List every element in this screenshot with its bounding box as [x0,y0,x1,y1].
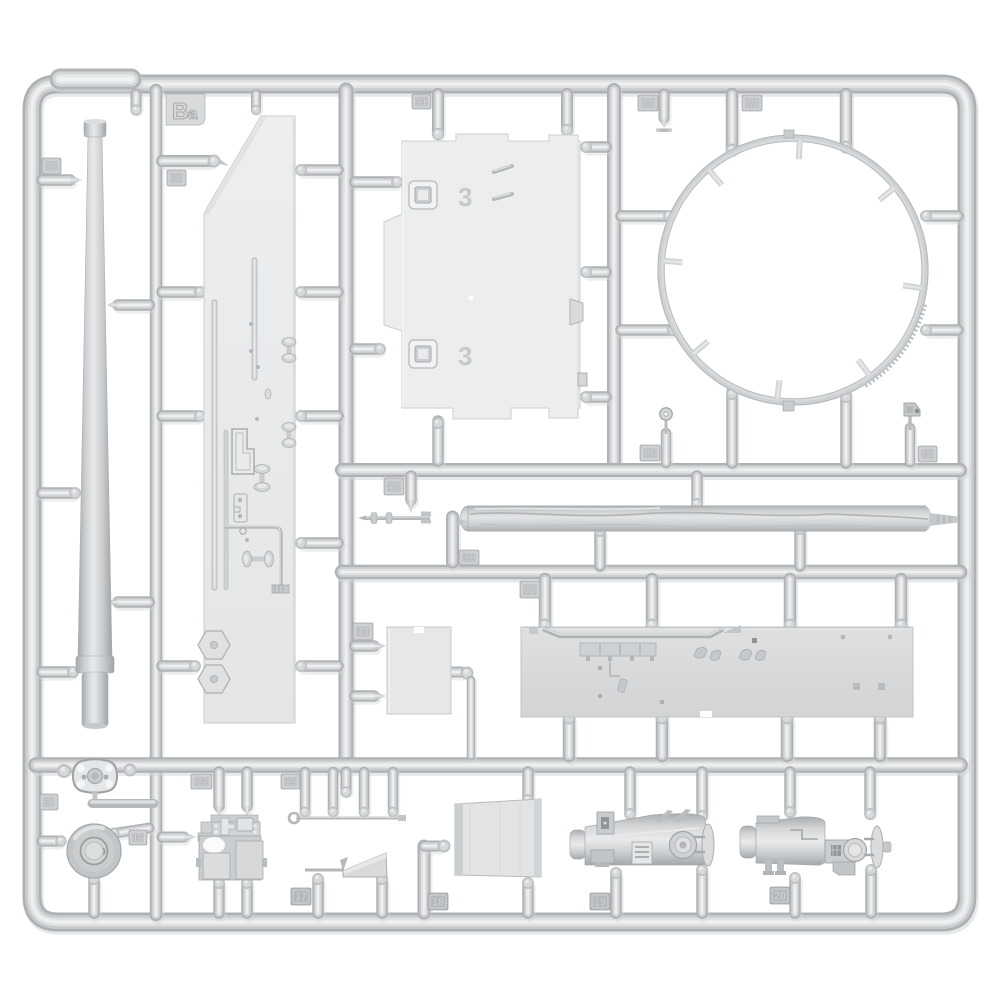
svg-text:1: 1 [48,161,54,173]
svg-text:14: 14 [196,777,208,788]
svg-text:4: 4 [173,173,180,185]
svg-text:15: 15 [285,777,297,788]
svg-text:8: 8 [645,98,651,110]
svg-text:3: 3 [924,449,930,461]
svg-text:20: 20 [774,891,786,903]
svg-text:B: B [172,98,189,124]
svg-text:9: 9 [647,448,653,460]
svg-text:16: 16 [132,833,144,844]
svg-text:12: 12 [524,585,536,597]
svg-text:18: 18 [432,897,444,909]
svg-text:17: 17 [295,892,307,904]
svg-text:41: 41 [416,97,428,108]
svg-text:7: 7 [749,98,755,110]
svg-text:3: 3 [458,182,472,212]
svg-text:3: 3 [458,341,472,371]
svg-text:2: 2 [46,797,52,809]
svg-text:a: a [188,104,198,123]
svg-text:13: 13 [357,627,369,639]
svg-text:10: 10 [388,482,400,494]
svg-text:11: 11 [464,553,475,564]
svg-text:19: 19 [594,897,606,909]
